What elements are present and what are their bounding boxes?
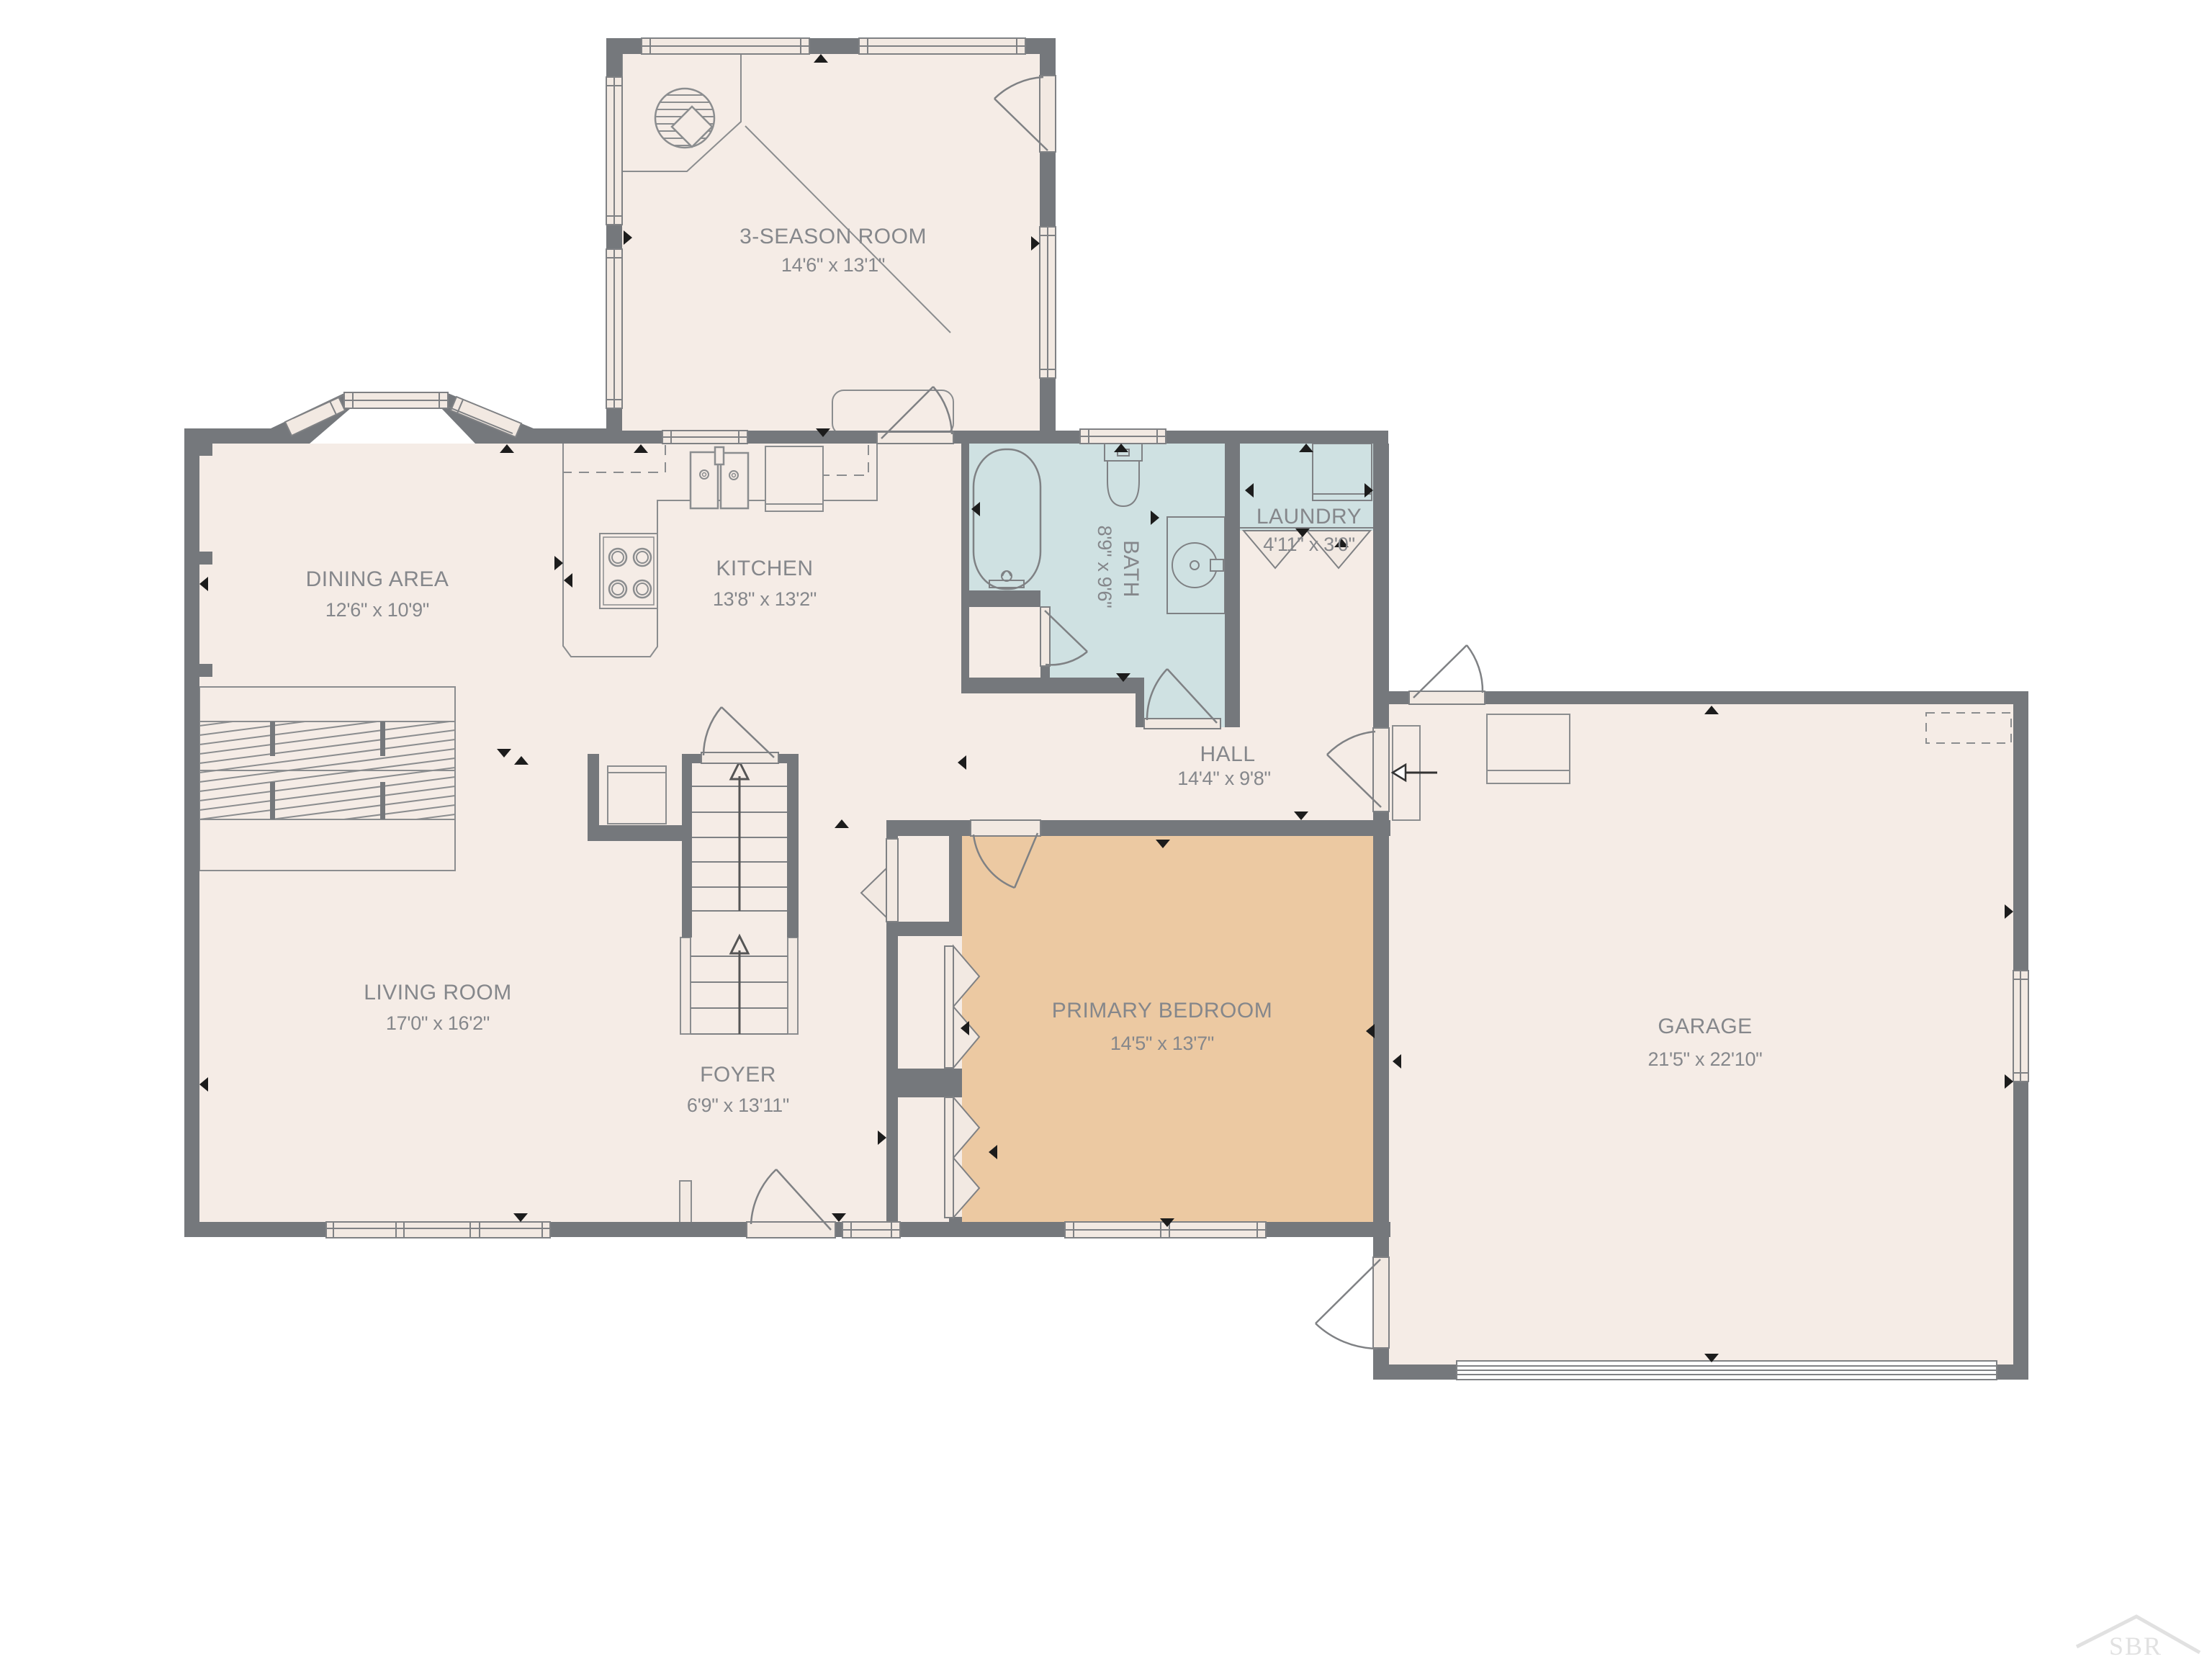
svg-text:DINING AREA: DINING AREA bbox=[306, 567, 449, 591]
svg-text:BATH: BATH bbox=[1119, 540, 1143, 598]
svg-text:21'5" x 22'10": 21'5" x 22'10" bbox=[1648, 1048, 1763, 1070]
svg-text:14'6" x 13'1": 14'6" x 13'1" bbox=[781, 254, 885, 276]
svg-text:GARAGE: GARAGE bbox=[1658, 1015, 1752, 1038]
svg-text:SBR: SBR bbox=[2109, 1632, 2162, 1659]
svg-text:FOYER: FOYER bbox=[700, 1063, 776, 1087]
svg-text:LAUNDRY: LAUNDRY bbox=[1256, 505, 1362, 529]
svg-text:12'6" x 10'9": 12'6" x 10'9" bbox=[325, 599, 429, 621]
svg-text:8'9" x 9'6": 8'9" x 9'6" bbox=[1094, 526, 1115, 608]
svg-text:3-SEASON ROOM: 3-SEASON ROOM bbox=[739, 225, 927, 248]
svg-text:LIVING ROOM: LIVING ROOM bbox=[364, 981, 512, 1004]
svg-text:14'5" x 13'7": 14'5" x 13'7" bbox=[1110, 1033, 1214, 1054]
svg-text:6'9" x 13'11": 6'9" x 13'11" bbox=[687, 1094, 789, 1116]
svg-text:4'11" x 3'0": 4'11" x 3'0" bbox=[1263, 534, 1354, 555]
svg-text:PRIMARY BEDROOM: PRIMARY BEDROOM bbox=[1052, 999, 1272, 1022]
svg-text:13'8" x 13'2": 13'8" x 13'2" bbox=[713, 588, 817, 610]
svg-text:KITCHEN: KITCHEN bbox=[716, 557, 813, 580]
svg-text:14'4" x 9'8": 14'4" x 9'8" bbox=[1177, 768, 1270, 789]
svg-text:HALL: HALL bbox=[1200, 742, 1255, 766]
svg-text:17'0" x 16'2": 17'0" x 16'2" bbox=[386, 1012, 490, 1034]
